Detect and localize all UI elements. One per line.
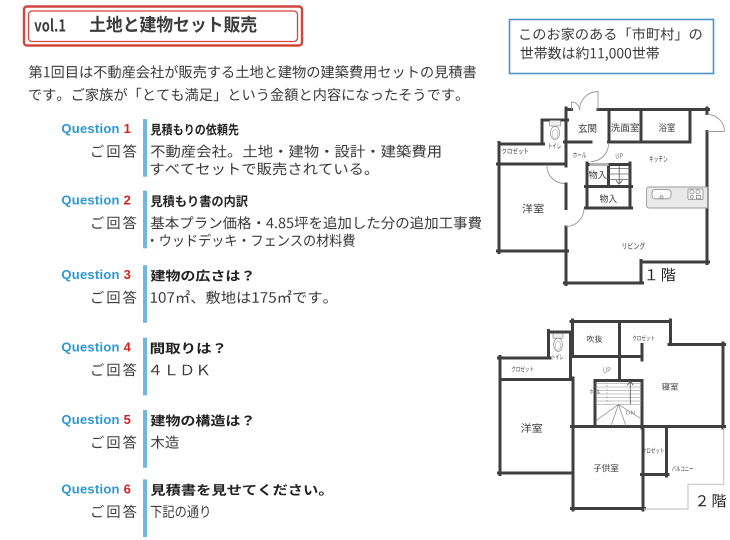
svg-text:Question 1: Question 1 xyxy=(61,121,131,136)
svg-text:Question 3: Question 3 xyxy=(61,267,131,282)
svg-text:Question 5: Question 5 xyxy=(61,412,131,427)
svg-text:Question 4: Question 4 xyxy=(61,340,131,355)
svg-text:Question 2: Question 2 xyxy=(61,193,131,208)
svg-text:Question 6: Question 6 xyxy=(61,481,131,496)
